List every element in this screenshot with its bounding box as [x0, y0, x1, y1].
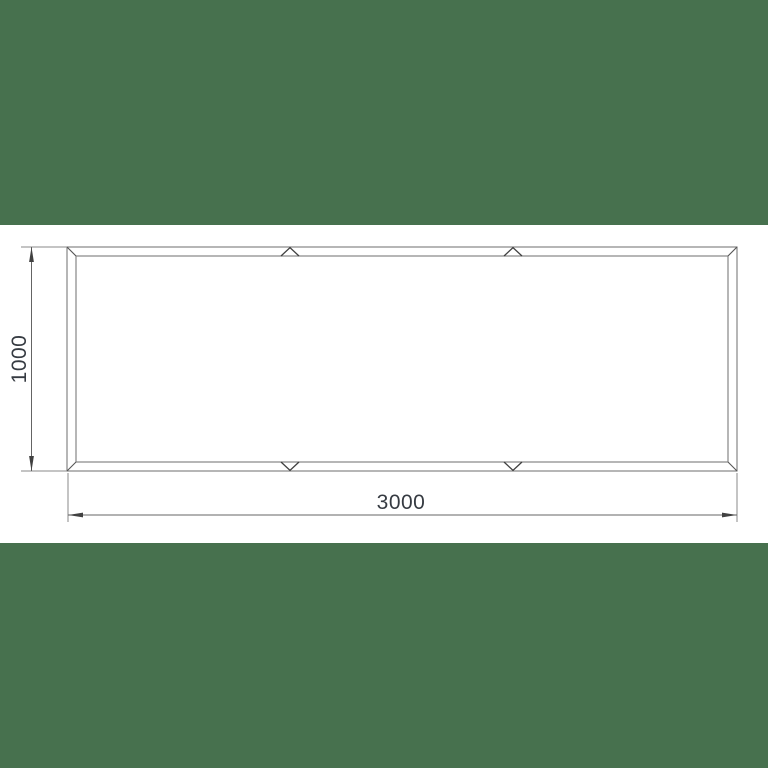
width-dim-arrowhead-right	[722, 513, 737, 518]
frame-outer-edge	[67, 247, 737, 471]
height-dim-arrowhead-bottom	[29, 456, 34, 471]
product-drawing-page: 1000 3000	[0, 0, 768, 768]
top-green-band	[0, 0, 768, 225]
width-dim-arrowhead-left	[68, 513, 83, 518]
height-dimension-label: 1000	[8, 335, 31, 384]
height-dim-arrowhead-top	[29, 247, 34, 262]
bottom-green-band	[0, 543, 768, 768]
width-dimension-label: 3000	[377, 491, 426, 514]
width-dimension: 3000	[68, 473, 737, 522]
technical-drawing-canvas: 1000 3000	[0, 0, 768, 768]
height-dimension: 1000	[8, 247, 67, 471]
frame-plan-drawing	[67, 247, 737, 471]
